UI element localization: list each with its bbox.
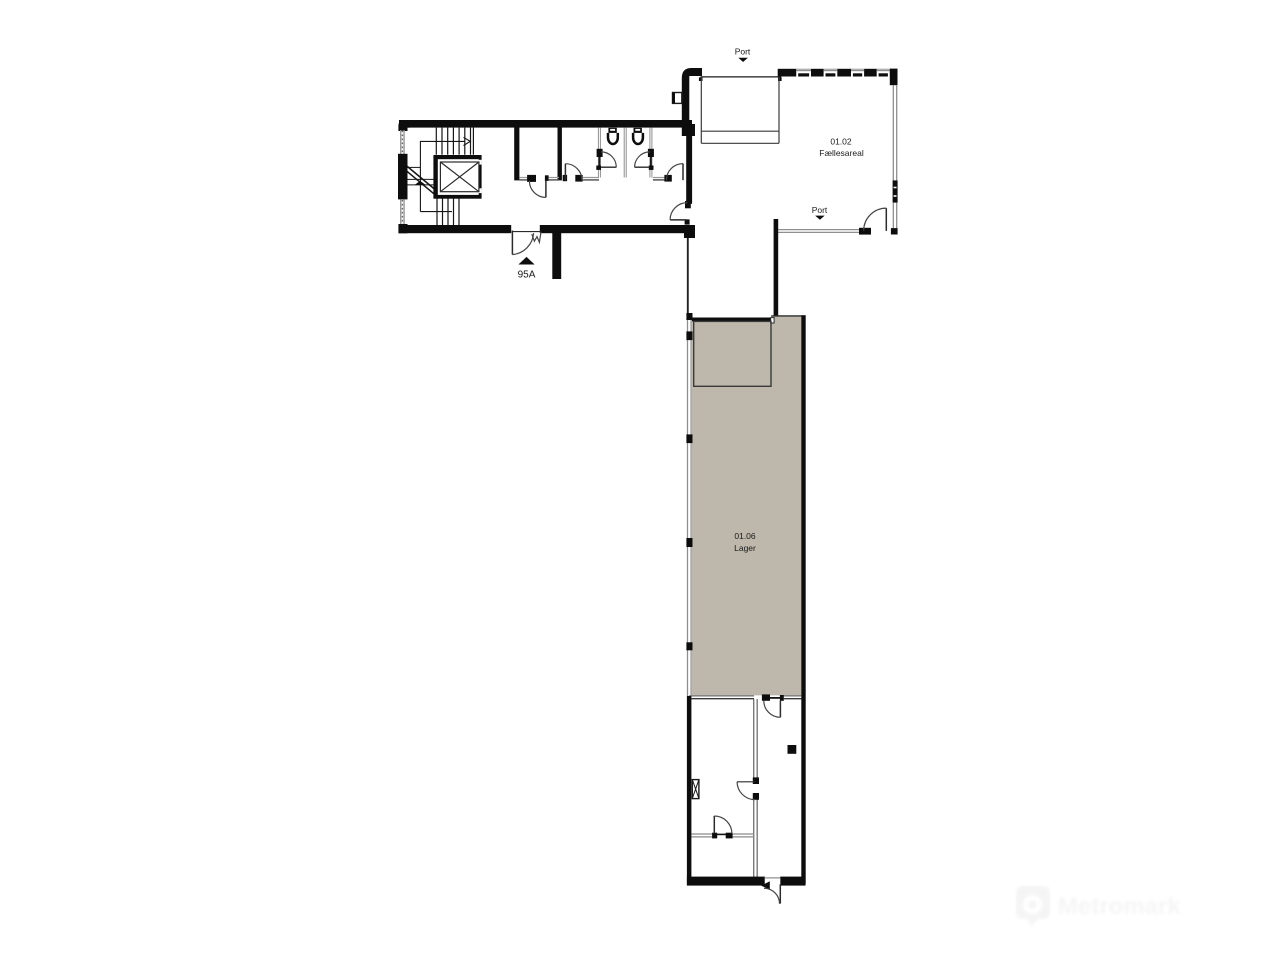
svg-text:Metromark: Metromark (1058, 893, 1181, 920)
svg-text:Fællesareal: Fællesareal (819, 148, 864, 158)
svg-text:Port: Port (735, 47, 751, 57)
svg-text:01.02: 01.02 (830, 136, 852, 146)
svg-text:Lager: Lager (734, 543, 756, 553)
svg-text:01.06: 01.06 (734, 531, 756, 541)
svg-text:95A: 95A (518, 269, 536, 280)
svg-text:Port: Port (812, 205, 828, 215)
